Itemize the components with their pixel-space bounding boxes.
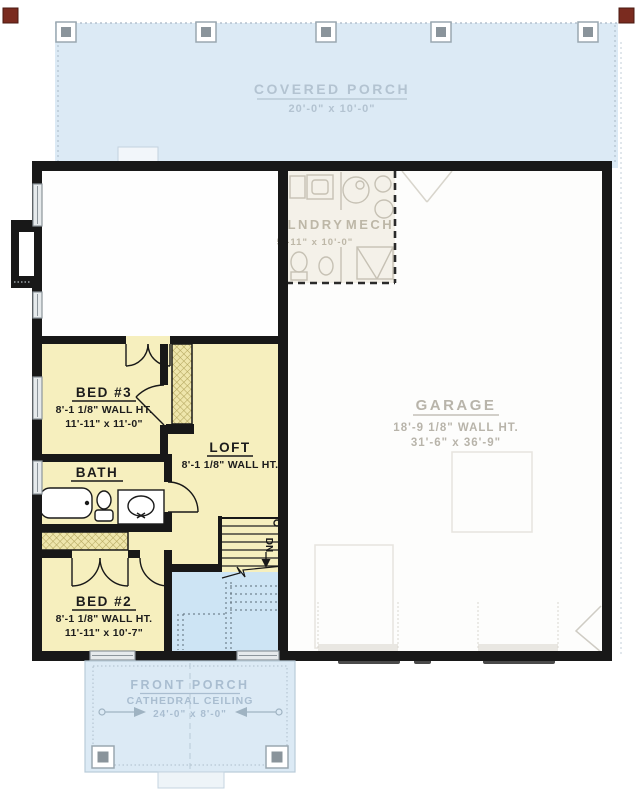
porch-post (266, 746, 288, 768)
hatched-chase (172, 344, 192, 424)
porch-post (56, 22, 76, 42)
covered-porch-title: COVERED PORCH (254, 81, 410, 97)
porch-post (92, 746, 114, 768)
bed3-dims: 11'-11" x 11'-0" (65, 418, 143, 430)
porch-steps (158, 772, 224, 788)
roof-marker (619, 8, 634, 23)
sink (128, 496, 154, 516)
bed2-wall-ht: 8'-1 1/8" WALL HT. (56, 613, 153, 625)
stairs-dn-label: DN (263, 538, 274, 552)
mech-label: MECH (346, 217, 394, 232)
lndry-dims: 5'-11" x 10'-0" (277, 237, 354, 248)
bed2-dims: 11'-11" x 10'-7" (65, 627, 143, 639)
room-bath: BATH (71, 465, 123, 481)
toilet (97, 491, 111, 509)
lndry-label: LNDRY (288, 217, 345, 232)
covered-porch-dims: 20'-0" x 10'-0" (289, 103, 376, 115)
porch-post (196, 22, 216, 42)
front-porch-subtitle: CATHEDRAL CEILING (127, 695, 254, 707)
bath-fixtures (40, 488, 164, 524)
open-area-floor (42, 171, 279, 336)
porch-post (316, 22, 336, 42)
loft-label: LOFT (209, 440, 250, 455)
porch-post (431, 22, 451, 42)
porch-post (578, 22, 598, 42)
chimney (11, 220, 42, 288)
loft-wall-ht: 8'-1 1/8" WALL HT. (182, 459, 279, 471)
roof-marker (3, 8, 18, 23)
front-porch-dims: 24'-0" x 8'-0" (153, 709, 227, 720)
hatched-closet (40, 532, 128, 550)
garage-dims: 31'-6" x 36'-9" (411, 437, 501, 449)
bed2-label: BED #2 (76, 594, 132, 609)
floor-plan: COVERED PORCH 20'-0" x 10'-0" LNDRY 5'-1… (0, 0, 637, 800)
bath-label: BATH (76, 465, 119, 480)
front-porch: FRONT PORCH CATHEDRAL CEILING 24'-0" x 8… (85, 661, 295, 788)
garage-wall-ht: 18'-9 1/8" WALL HT. (393, 422, 518, 434)
bed3-label: BED #3 (76, 385, 132, 400)
bed3-wall-ht: 8'-1 1/8" WALL HT. (56, 404, 153, 416)
bathtub (40, 488, 92, 518)
floor-plan-svg: COVERED PORCH 20'-0" x 10'-0" LNDRY 5'-1… (0, 0, 637, 800)
garage-label: GARAGE (416, 397, 497, 414)
front-porch-title: FRONT PORCH (130, 678, 249, 692)
